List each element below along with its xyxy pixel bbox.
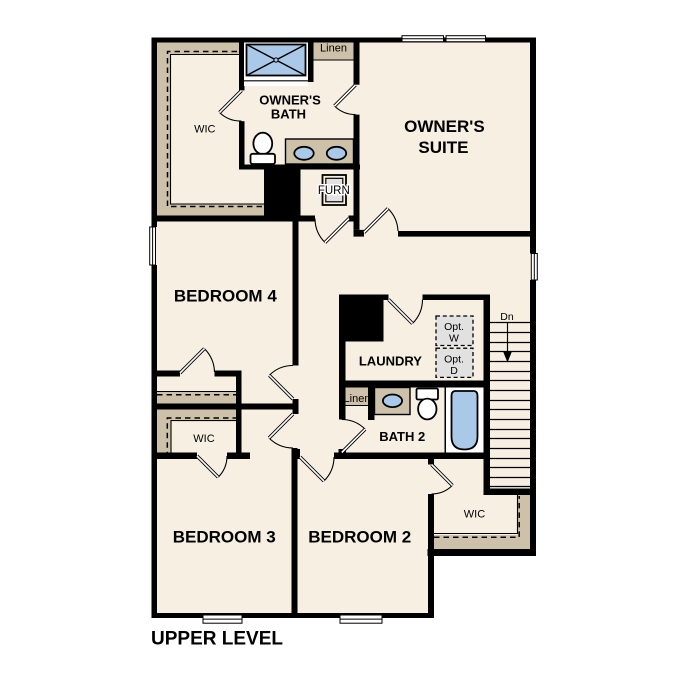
svg-text:UPPER LEVEL: UPPER LEVEL [151,628,283,649]
svg-text:WIC: WIC [193,433,214,445]
svg-text:BATH: BATH [271,107,306,122]
svg-text:SUITE: SUITE [418,138,468,157]
svg-text:Linen: Linen [344,393,371,405]
svg-text:Linen: Linen [320,43,347,55]
svg-text:BEDROOM 3: BEDROOM 3 [173,528,276,547]
svg-text:BATH 2: BATH 2 [379,429,425,444]
svg-text:W: W [449,333,459,345]
svg-text:BEDROOM 4: BEDROOM 4 [174,286,278,305]
svg-text:WIC: WIC [194,123,215,135]
svg-text:BEDROOM 2: BEDROOM 2 [308,528,411,547]
svg-text:Dn: Dn [500,311,514,323]
svg-text:D: D [450,365,458,377]
svg-text:OWNER'S: OWNER'S [404,117,485,136]
svg-text:Opt.: Opt. [444,354,464,366]
svg-text:FURN: FURN [318,185,350,197]
svg-text:LAUNDRY: LAUNDRY [359,353,422,368]
svg-text:WIC: WIC [464,508,485,520]
svg-text:Opt.: Opt. [444,321,464,333]
svg-text:OWNER'S: OWNER'S [259,93,321,108]
